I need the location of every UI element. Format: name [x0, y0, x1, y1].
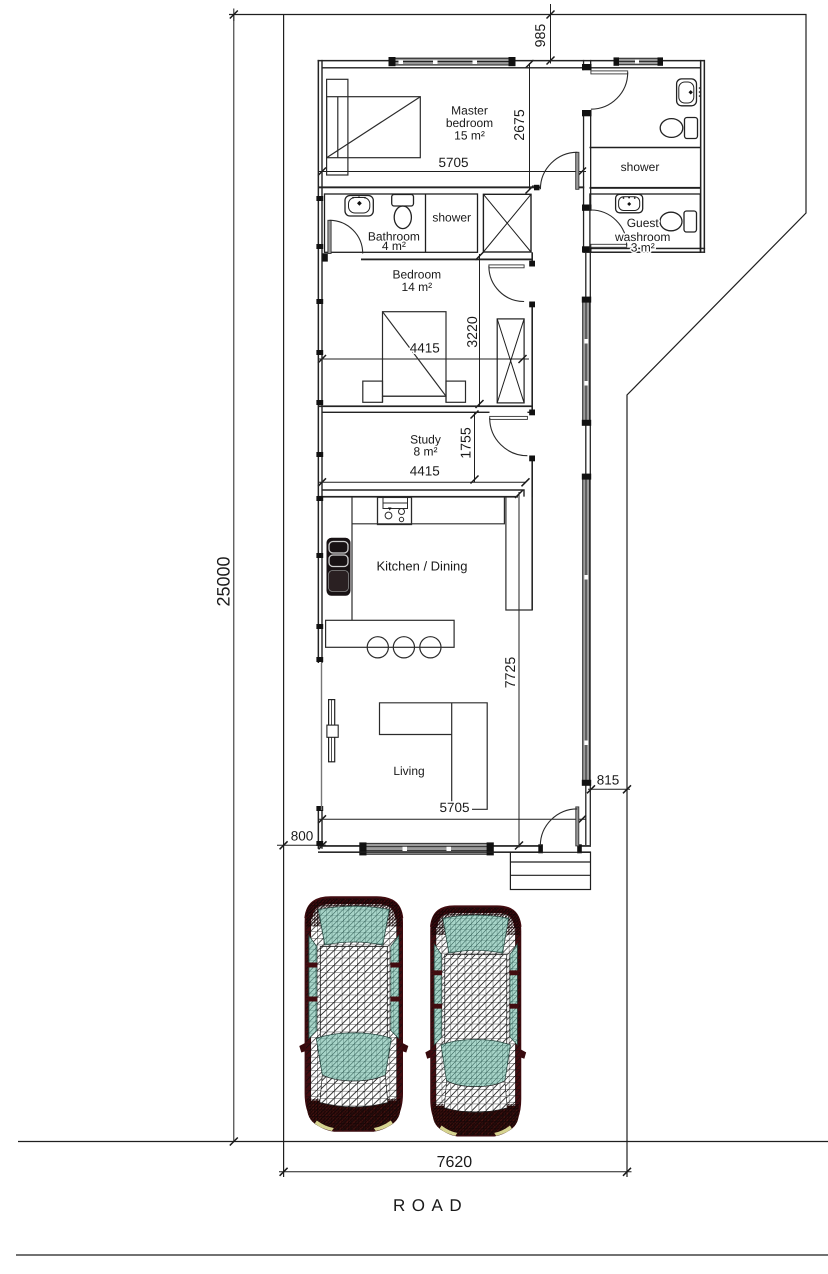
svg-text:7725: 7725 — [503, 657, 519, 689]
svg-text:14 m²: 14 m² — [401, 280, 432, 294]
svg-text:8 m²: 8 m² — [414, 445, 438, 459]
svg-text:985: 985 — [533, 24, 549, 48]
svg-text:2675: 2675 — [512, 109, 528, 141]
svg-text:7620: 7620 — [437, 1154, 473, 1171]
svg-text:shower: shower — [432, 211, 471, 225]
svg-text:Kitchen / Dining: Kitchen / Dining — [376, 559, 467, 574]
svg-text:Guest: Guest — [627, 216, 660, 230]
svg-text:1755: 1755 — [459, 427, 475, 459]
svg-text:25000: 25000 — [214, 556, 234, 606]
svg-text:4 m²: 4 m² — [382, 239, 406, 253]
svg-text:ROAD: ROAD — [393, 1196, 468, 1215]
svg-text:3 m²: 3 m² — [631, 241, 655, 255]
svg-text:15 m²: 15 m² — [454, 129, 485, 143]
svg-text:4415: 4415 — [410, 341, 440, 356]
svg-text:815: 815 — [597, 773, 620, 788]
svg-text:shower: shower — [621, 160, 660, 174]
svg-text:5705: 5705 — [439, 800, 469, 815]
svg-text:800: 800 — [291, 829, 314, 844]
svg-text:Living: Living — [393, 764, 424, 778]
svg-text:4415: 4415 — [410, 464, 440, 479]
svg-text:3220: 3220 — [465, 316, 481, 348]
svg-text:5705: 5705 — [438, 155, 468, 170]
